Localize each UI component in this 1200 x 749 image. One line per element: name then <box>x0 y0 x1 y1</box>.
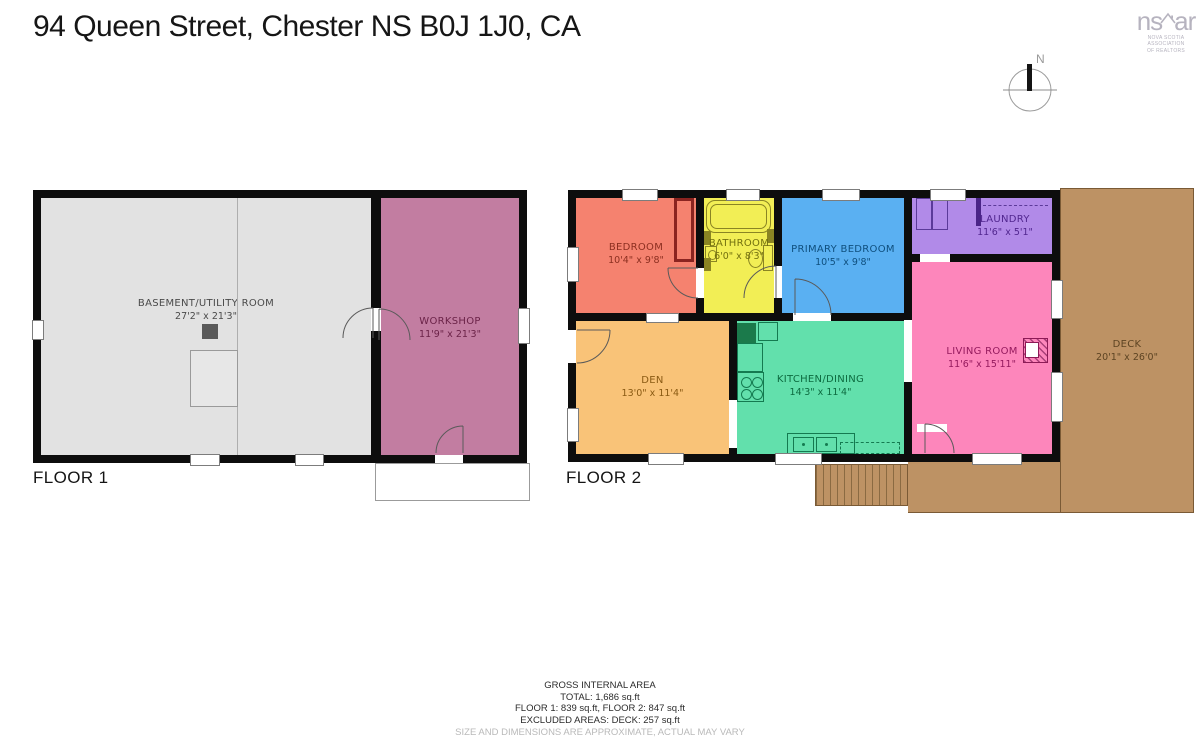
summary-line: GROSS INTERNAL AREA <box>0 680 1200 692</box>
washer <box>916 198 932 230</box>
nsar-logo: ns ar NOVA SCOTIA ASSOCIATION OF REALTOR… <box>1134 8 1198 54</box>
floor2-label: FLOOR 2 <box>566 468 642 488</box>
room-bedroom: BEDROOM 10'4" x 9'8" <box>576 198 696 313</box>
passage-opening <box>920 254 950 262</box>
compass-north-label: N <box>1036 52 1045 66</box>
floorplan-page: 94 Queen Street, Chester NS B0J 1J0, CA … <box>0 0 1200 749</box>
room-dims: 11'6" x 5'1" <box>958 227 1052 238</box>
floor1-label: FLOOR 1 <box>33 468 109 488</box>
deck-stairs <box>815 464 908 506</box>
window <box>1051 372 1063 422</box>
room-name: WORKSHOP <box>381 316 519 327</box>
fireplace-box <box>1025 342 1039 358</box>
room-bathroom: BATHROOM 6'0" x 8'3" <box>704 198 774 313</box>
door-opening <box>435 455 463 463</box>
kitchen-sink <box>816 437 837 452</box>
floor2-plan: BEDROOM 10'4" x 9'8" BATHROOM 6'0" x 8'3… <box>568 190 1060 462</box>
room-workshop: WORKSHOP 11'9" x 21'3" <box>381 198 519 455</box>
passage-opening <box>904 320 912 382</box>
window <box>1051 280 1063 319</box>
room-name: DECK <box>1061 339 1193 350</box>
bedroom-closet <box>674 198 694 262</box>
summary-disclaimer: SIZE AND DIMENSIONS ARE APPROXIMATE, ACT… <box>0 727 1200 739</box>
door-opening <box>793 313 831 321</box>
room-kitchen: KITCHEN/DINING 14'3" x 11'4" <box>737 321 904 454</box>
room-den: DEN 13'0" x 11'4" <box>576 321 729 454</box>
room-name: DEN <box>576 375 729 386</box>
door-opening <box>696 268 704 298</box>
logo-subtext-2: OF REALTORS <box>1134 48 1198 54</box>
deck-right: DECK 20'1" x 26'0" <box>1060 188 1194 513</box>
cased-opening <box>646 313 679 323</box>
kitchen-counter <box>737 343 763 372</box>
stove <box>737 372 764 402</box>
room-laundry: LAUNDRY 11'6" x 5'1" <box>912 198 1052 254</box>
compass-icon <box>1003 64 1057 111</box>
furnace <box>202 324 218 339</box>
basement-stairs <box>190 350 238 407</box>
window <box>518 308 530 344</box>
room-dims: 13'0" x 11'4" <box>576 388 729 399</box>
area-summary: GROSS INTERNAL AREA TOTAL: 1,686 sq.ft F… <box>0 680 1200 739</box>
window <box>930 189 966 201</box>
refrigerator <box>737 323 756 343</box>
summary-line: EXCLUDED AREAS: DECK: 257 sq.ft <box>0 715 1200 727</box>
door-opening <box>774 266 782 298</box>
dryer <box>932 198 948 230</box>
entry-door-opening <box>568 330 576 363</box>
window <box>190 454 220 466</box>
room-name: LAUNDRY <box>958 214 1052 225</box>
room-name: BASEMENT/UTILITY ROOM <box>41 298 371 309</box>
deck-bottom <box>908 462 1061 513</box>
room-primary-bedroom: PRIMARY BEDROOM 10'5" x 9'8" <box>782 198 904 313</box>
kitchen-sink <box>793 437 814 452</box>
floor1-plan: BASEMENT/UTILITY ROOM 27'2" x 21'3" WORK… <box>33 190 527 463</box>
dishwasher-dashed <box>840 442 900 454</box>
room-dims: 20'1" x 26'0" <box>1061 352 1193 363</box>
kitchen-counter <box>758 322 778 341</box>
window <box>567 247 579 282</box>
logo-text-right: ar <box>1174 8 1195 34</box>
door-opening <box>917 424 947 432</box>
window <box>972 453 1022 465</box>
window <box>648 453 684 465</box>
window <box>822 189 860 201</box>
window <box>567 408 579 442</box>
window <box>775 453 822 465</box>
logo-text-left: ns <box>1137 8 1162 34</box>
page-title: 94 Queen Street, Chester NS B0J 1J0, CA <box>33 10 580 44</box>
room-dims: 10'5" x 9'8" <box>782 257 904 268</box>
passage-opening <box>729 400 737 448</box>
room-dims: 27'2" x 21'3" <box>41 311 371 322</box>
window <box>32 320 44 340</box>
window <box>726 189 760 201</box>
window <box>622 189 658 201</box>
room-dims: 11'9" x 21'3" <box>381 329 519 340</box>
bathtub <box>706 200 771 233</box>
room-dims: 6'0" x 8'3" <box>704 251 774 262</box>
room-name: BATHROOM <box>704 238 774 249</box>
summary-line: FLOOR 1: 839 sq.ft, FLOOR 2: 847 sq.ft <box>0 703 1200 715</box>
basement-partition-line <box>237 198 238 455</box>
wall-stub <box>976 198 981 226</box>
laundry-counter-dashed <box>983 205 1048 206</box>
summary-line: TOTAL: 1,686 sq.ft <box>0 692 1200 704</box>
door-opening <box>371 308 381 331</box>
room-name: PRIMARY BEDROOM <box>782 244 904 255</box>
window <box>295 454 324 466</box>
floor1-exterior-landing <box>375 463 530 501</box>
logo-subtext-1: NOVA SCOTIA ASSOCIATION <box>1134 35 1198 47</box>
